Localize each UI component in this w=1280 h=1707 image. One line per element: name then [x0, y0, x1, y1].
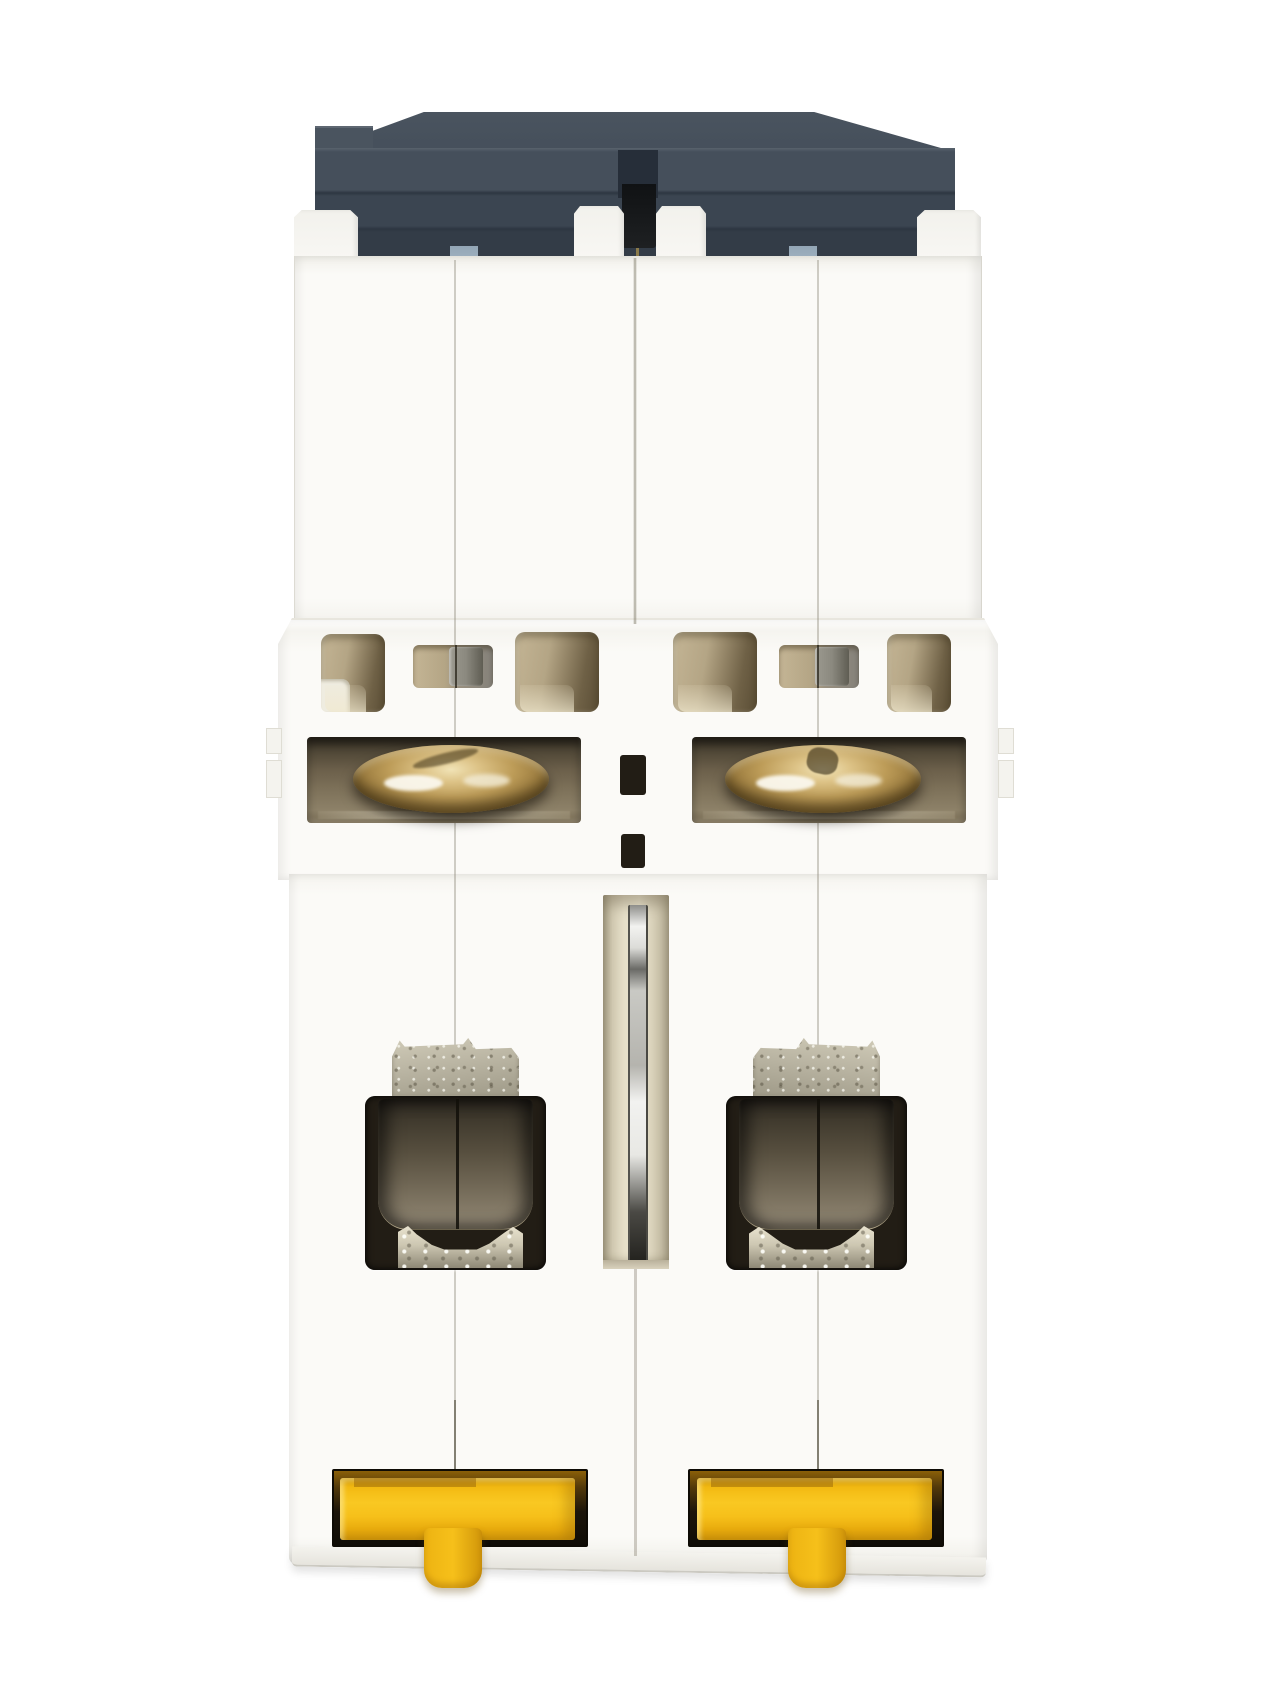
- vent-right-outer: [887, 634, 951, 712]
- center-slot-lip: [603, 1260, 669, 1269]
- center-link-pin: [628, 905, 648, 1262]
- vent-left-inner: [515, 632, 599, 712]
- case-seam-left-dark: [454, 1400, 456, 1472]
- slider-step: [354, 1478, 476, 1487]
- coil-seam: [455, 645, 457, 688]
- screwdriver-slot: [411, 745, 478, 772]
- vent-inner-shelf: [325, 685, 366, 712]
- edge-notch-right-2: [998, 760, 1014, 798]
- din-clip-release-tab-left: [424, 1528, 482, 1588]
- upper-case: [294, 256, 982, 624]
- screwdriver-slot: [805, 745, 841, 777]
- edge-notch-right-1: [998, 728, 1014, 754]
- case-seam-right-pole: [817, 260, 819, 1472]
- cage-window-right: [739, 1099, 894, 1230]
- coil-cylinder: [815, 647, 849, 687]
- din-clip-release-tab-right: [788, 1528, 846, 1588]
- vent-inner-shelf: [520, 685, 574, 712]
- case-seam-left-pole: [454, 260, 456, 1472]
- screw-highlight: [384, 775, 443, 791]
- slider-step: [711, 1478, 833, 1487]
- vent-inner-shelf: [891, 685, 932, 712]
- terminal-screw-right: [725, 745, 921, 813]
- screw-highlight: [463, 774, 510, 788]
- edge-notch-left-2: [266, 760, 282, 798]
- coil-seam: [817, 645, 819, 688]
- product-photo-circuit-breaker: [0, 0, 1280, 1707]
- vent-right-center: [779, 645, 859, 688]
- vent-left-outer: [321, 634, 385, 712]
- pole-gap-upper: [633, 258, 637, 624]
- cage-window-seam: [456, 1099, 459, 1229]
- cap-top-face: [315, 112, 955, 152]
- cage-window-left: [378, 1099, 533, 1230]
- screw-highlight: [756, 775, 815, 791]
- pole-gap-lower: [634, 1268, 637, 1556]
- toggle-linkage-tab: [622, 184, 656, 248]
- vent-right-inner: [673, 632, 757, 712]
- center-notch-upper: [620, 755, 646, 795]
- cage-window-seam: [817, 1099, 820, 1229]
- center-notch-lower: [621, 834, 645, 868]
- screw-highlight: [835, 774, 882, 788]
- case-seam-right-dark: [817, 1400, 819, 1472]
- edge-notch-left-1: [266, 728, 282, 754]
- vent-left-center: [413, 645, 493, 688]
- terminal-screw-left: [353, 745, 549, 813]
- vent-inner-shelf: [678, 685, 732, 712]
